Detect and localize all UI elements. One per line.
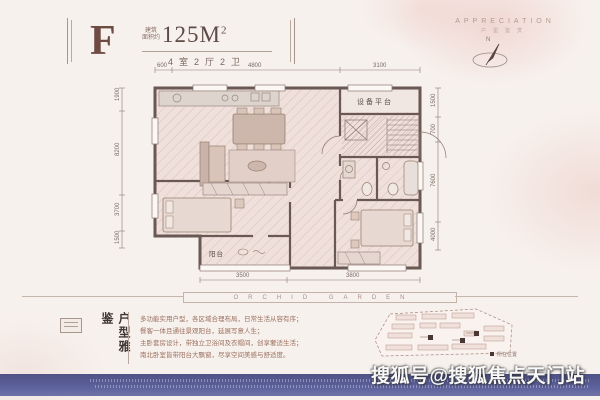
appreciation-en: APPRECIATION: [430, 18, 580, 25]
divider-line-left: [22, 296, 183, 297]
area-value: 125M2: [162, 22, 227, 48]
seal-icon: [60, 318, 82, 333]
dim-bottom-3500: 3500: [236, 273, 250, 279]
watermark-text: 搜狐号@搜狐焦点天门站: [371, 361, 585, 388]
dim-bottom-3800: 3800: [346, 273, 360, 279]
compass-north-label: N: [486, 37, 490, 43]
dim-top-3100: 3100: [373, 63, 387, 69]
dining-set: [233, 108, 285, 150]
floorplan-page: F 建筑 面积约 125M2 4室2厅2卫 APPRECIATION 户型鉴赏 …: [0, 0, 600, 400]
notes-line-4: 南北卧室皆带阳台大飘窗，尽享空间美感与舒适度。: [140, 350, 320, 362]
kitchen: [159, 91, 279, 106]
area-row: 建筑 面积约 125M2: [142, 22, 227, 48]
compass-icon: N: [462, 32, 518, 78]
equipment-room-label: 设备平台: [357, 97, 393, 106]
area-number: 125M: [162, 22, 221, 47]
area-prefix: 建筑 面积约: [142, 28, 160, 42]
divider-line-right: [455, 296, 578, 297]
stairwell-hatch: [342, 116, 418, 155]
notes-line-3: 主卧套房设计，带独立卫浴间及衣帽间，创享奢适生活；: [140, 338, 320, 350]
balcony-label: 阳台: [209, 249, 224, 258]
area-prefix-line1: 建筑: [142, 28, 160, 35]
dim-right-700: 700: [431, 123, 437, 134]
dim-top-600: 600: [157, 63, 168, 69]
siteplan-legend-swatch: [490, 352, 494, 356]
siteplan-map: 所在位置: [368, 300, 558, 370]
dim-left-1500: 1500: [115, 230, 121, 244]
dim-top-4800: 4800: [248, 63, 262, 69]
dim-left-3700: 3700: [115, 202, 121, 216]
dim-left-1900: 1900: [115, 87, 121, 101]
area-superscript: 2: [221, 24, 228, 36]
floorplan-drawing: 设备平台 阳台 600 4800 3100 3500 3800 1900 820…: [105, 58, 455, 303]
notes-line-1: 多功能实用户型，各区域合理布局，日常生活从容有序；: [140, 314, 320, 326]
dim-right-1500: 1500: [431, 93, 437, 107]
area-prefix-line2: 面积约: [142, 35, 160, 42]
dim-right-7600: 7600: [431, 173, 437, 187]
notes-separator: [128, 312, 129, 364]
dim-right-4000: 4000: [431, 227, 437, 241]
notes-body: 多功能实用户型，各区域合理布局，日常生活从容有序； 餐客一体且通往景观阳台，延展…: [140, 314, 320, 362]
unit-letter: F: [90, 19, 116, 63]
siteplan-legend-label: 所在位置: [497, 351, 517, 358]
dim-left-8200: 8200: [115, 142, 121, 156]
notes-line-2: 餐客一体且通往景观阳台，延展写意人生；: [140, 326, 320, 338]
